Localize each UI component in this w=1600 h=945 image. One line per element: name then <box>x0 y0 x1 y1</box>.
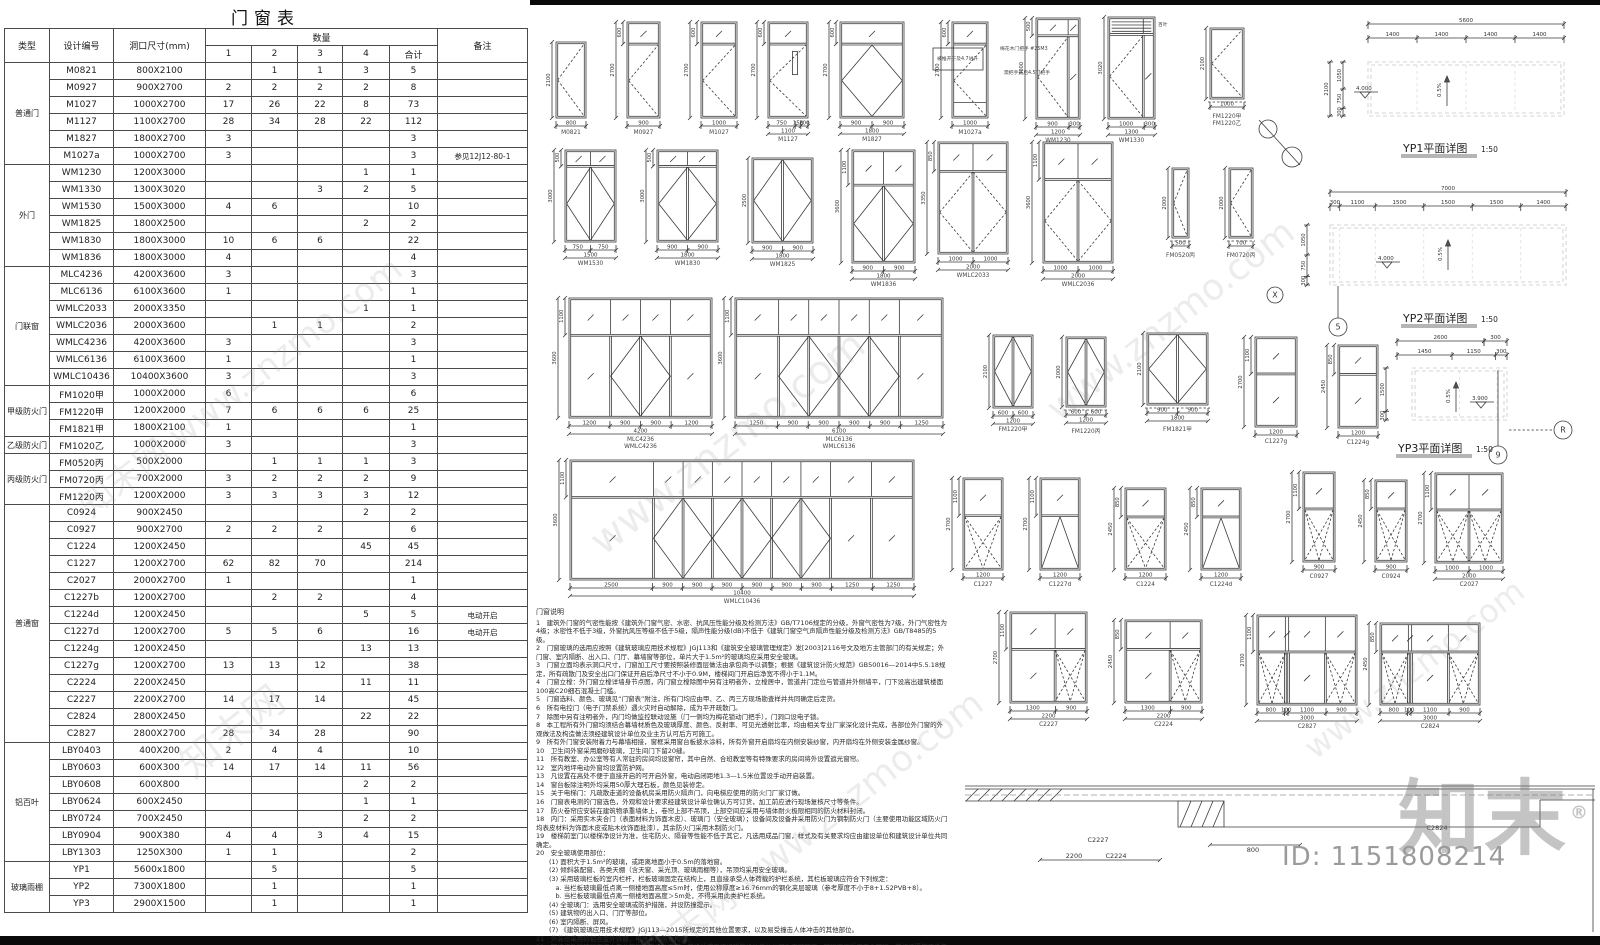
svg-text:3.900: 3.900 <box>1472 396 1488 402</box>
svg-text:600: 600 <box>1018 411 1029 417</box>
diagram-MLC4236 <box>556 296 714 436</box>
annotation: 百叶 <box>1158 21 1168 28</box>
svg-text:2450: 2450 <box>1184 522 1190 535</box>
svg-text:300: 300 <box>1496 349 1507 355</box>
svg-text:900: 900 <box>1181 706 1192 712</box>
svg-text:300: 300 <box>1330 200 1341 206</box>
svg-text:850: 850 <box>1328 354 1334 364</box>
svg-text:900: 900 <box>818 421 829 427</box>
svg-text:1100: 1100 <box>1000 624 1006 637</box>
svg-text:4.000: 4.000 <box>1378 256 1394 262</box>
svg-text:1200: 1200 <box>582 421 596 427</box>
section-label: C2227 <box>1087 836 1108 844</box>
svg-text:2450: 2450 <box>1363 657 1369 670</box>
svg-text:900: 900 <box>620 421 631 427</box>
svg-text:800: 800 <box>1389 708 1400 714</box>
plan-YP3平面详图 <box>1383 338 1509 422</box>
svg-text:2450: 2450 <box>1321 380 1327 393</box>
svg-text:100: 100 <box>1281 708 1292 714</box>
svg-text:0.5%: 0.5% <box>1446 389 1452 403</box>
diagram-FM0720丙 <box>1223 166 1255 249</box>
svg-text:3600: 3600 <box>552 351 558 364</box>
note-line: 11 所有教室、办公室等有人常驻的房间均设窗帘，其中自然、合班教室等有特殊要求的… <box>536 755 948 764</box>
svg-text:900: 900 <box>894 266 905 272</box>
diagram-WM1836 <box>839 148 917 281</box>
svg-text:FM1821甲: FM1821甲 <box>1163 426 1192 433</box>
note-line: 1 建筑外门窗的气密性能按《建筑外门窗气密、水密、抗风压性能分级及检测方法》GB… <box>536 619 948 645</box>
svg-text:2700: 2700 <box>1418 511 1424 524</box>
diagram-C2027 <box>1422 471 1505 581</box>
svg-text:1250: 1250 <box>886 583 900 589</box>
svg-text:1200: 1200 <box>976 573 990 579</box>
svg-text:750: 750 <box>1301 261 1307 271</box>
svg-text:1000: 1000 <box>984 257 998 263</box>
svg-text:3000: 3000 <box>1423 716 1437 722</box>
svg-text:2100: 2100 <box>546 73 552 86</box>
svg-text:800: 800 <box>1266 708 1277 714</box>
svg-text:FM0720丙: FM0720丙 <box>1227 252 1256 259</box>
svg-text:2000: 2000 <box>1162 196 1168 209</box>
svg-text:2700: 2700 <box>610 63 616 76</box>
svg-text:1150: 1150 <box>1467 349 1481 355</box>
svg-text:750: 750 <box>598 245 609 251</box>
svg-text:4200: 4200 <box>634 429 648 435</box>
svg-text:1000: 1000 <box>1479 566 1493 572</box>
svg-text:1300: 1300 <box>1141 706 1155 712</box>
plan-title: YP3平面详图 <box>1397 441 1462 455</box>
svg-text:1400: 1400 <box>1533 32 1547 38</box>
svg-text:1100: 1100 <box>1293 484 1299 497</box>
svg-text:1100: 1100 <box>1245 349 1251 362</box>
svg-text:900: 900 <box>662 583 673 589</box>
svg-text:1500: 1500 <box>584 253 598 259</box>
note-line: 8 本工程所有外门窗均须结合幕墙材质色及玻璃厚度、颜色、反射率、可见光透射比率，… <box>536 721 948 738</box>
svg-text:C2227: C2227 <box>1039 722 1058 728</box>
svg-text:2200: 2200 <box>1042 714 1056 720</box>
note-line: (4) 全玻璃门：选用安全玻璃或防护措施，并设防撞提示。 <box>536 901 948 910</box>
note-line: (3) 采用玻璃栏板的室内栏杆，栏板玻璃固定在结构上，且直接承受人体荷载的护栏系… <box>536 875 948 884</box>
svg-text:0.5%: 0.5% <box>1437 83 1443 97</box>
diagram-M1827 <box>827 20 906 136</box>
note-line: 18 内门：采用实木夹合门（表面材料为饰面木皮）、玻璃门（安全玻璃）；设备间及设… <box>536 815 948 832</box>
note-line: (5) 建筑物的出入口、门厅等部位。 <box>536 909 948 918</box>
svg-text:900: 900 <box>851 121 862 127</box>
note-line: (7) 《建筑玻璃应用技术规程》JGJ113—2015所规定的其他位置要求，以及… <box>536 926 948 935</box>
svg-text:MLC6136: MLC6136 <box>825 437 852 443</box>
note-line: (6) 室内隔断、屏风。 <box>536 918 948 927</box>
svg-text:WM1836: WM1836 <box>871 282 897 288</box>
svg-text:1400: 1400 <box>1386 32 1400 38</box>
note-line: b. 当栏板玻璃最低点离一侧楼地面高度＞5m处，不得采用此类护栏系统。 <box>536 892 948 901</box>
note-line: 9 所有外门窗安装附着力与幕墙相接，窗框采用窗台板披水涂料，所有外窗开启扇均在内… <box>536 738 948 747</box>
svg-text:1100: 1100 <box>1033 154 1039 167</box>
svg-text:1100: 1100 <box>560 472 566 485</box>
svg-text:300: 300 <box>1337 107 1343 117</box>
svg-text:1100: 1100 <box>559 310 565 323</box>
svg-text:600: 600 <box>691 28 697 38</box>
svg-text:WMLC4236: WMLC4236 <box>624 444 657 450</box>
svg-text:900: 900 <box>788 421 799 427</box>
svg-text:800: 800 <box>566 121 577 127</box>
svg-text:C2827: C2827 <box>1298 724 1317 730</box>
note-line: 2 门窗玻璃的选用应按照《建筑玻璃应用技术规程》JGJ113和《建筑安全玻璃管理… <box>536 644 948 661</box>
note-line: (2) 倾斜装配窗、各类天棚（含天窗、采光顶、玻璃雨棚等），吊顶均采用安全玻璃。 <box>536 866 948 875</box>
svg-text:WM1230: WM1230 <box>1045 138 1071 144</box>
svg-text:600: 600 <box>758 28 764 38</box>
svg-text:M0927: M0927 <box>634 130 654 136</box>
plan-title: YP1平面详图 <box>1402 141 1467 155</box>
svg-text:3000: 3000 <box>548 189 554 202</box>
svg-text:1500: 1500 <box>1380 383 1386 396</box>
svg-text:1250: 1250 <box>915 421 929 427</box>
svg-text:2100: 2100 <box>1200 57 1206 70</box>
notes-block: 门窗说明 1 建筑外门窗的气密性能按《建筑外门窗气密、水密、抗风压性能分级及检测… <box>536 608 948 945</box>
svg-text:3020: 3020 <box>1098 61 1104 74</box>
svg-text:1200: 1200 <box>1351 431 1365 437</box>
svg-text:900: 900 <box>692 583 703 589</box>
svg-text:1500: 1500 <box>1393 200 1407 206</box>
note-line: 19 楼梯前室门以楼梯净设计为准，住宅防火、隔音等性能不低于其它，凡选用成品门窗… <box>536 832 948 849</box>
svg-text:2700: 2700 <box>935 63 941 76</box>
svg-text:1100: 1100 <box>842 161 848 174</box>
svg-text:900: 900 <box>811 583 822 589</box>
svg-text:900: 900 <box>698 245 709 251</box>
svg-text:2700: 2700 <box>1238 375 1244 388</box>
svg-text:2100: 2100 <box>1137 362 1143 375</box>
svg-text:900: 900 <box>793 246 804 252</box>
svg-text:600: 600 <box>942 28 948 38</box>
svg-text:1100: 1100 <box>1300 708 1314 714</box>
svg-text:1050: 1050 <box>1337 69 1343 82</box>
svg-text:C0927: C0927 <box>1310 574 1329 580</box>
svg-text:3000: 3000 <box>1300 716 1314 722</box>
svg-text:1200: 1200 <box>1139 573 1153 579</box>
svg-text:600: 600 <box>1071 410 1082 416</box>
svg-text:500: 500 <box>647 153 653 163</box>
svg-text:C1224d: C1224d <box>1210 582 1233 588</box>
svg-text:500: 500 <box>555 153 561 163</box>
svg-text:900: 900 <box>1459 708 1470 714</box>
svg-text:WM1330: WM1330 <box>1119 138 1145 144</box>
svg-text:200: 200 <box>799 121 810 127</box>
svg-text:2100: 2100 <box>1324 82 1330 95</box>
note-line: 5 门窗选料、颜色、玻璃见“门窗表”附注，所有门均应由甲、乙、丙三方现场勘查样并… <box>536 695 948 704</box>
diagram-FM1220甲 <box>1204 26 1246 110</box>
svg-text:1500: 1500 <box>1441 200 1455 206</box>
svg-text:1250: 1250 <box>749 421 763 427</box>
svg-text:2450: 2450 <box>1108 655 1114 668</box>
plan-YP2平面详图 <box>1304 189 1568 287</box>
svg-text:1500: 1500 <box>1489 200 1503 206</box>
svg-text:2700: 2700 <box>993 651 999 664</box>
svg-text:700: 700 <box>1236 241 1247 247</box>
diagram-WMLC2033 <box>925 140 1010 272</box>
svg-text:FM1220乙: FM1220乙 <box>1213 120 1242 127</box>
svg-text:1100: 1100 <box>953 490 959 503</box>
note-line: 7 除图中另有注明者外，内门均做监控联动设施（门一侧均为梅花锁动门把手），门洞口… <box>536 713 948 722</box>
svg-text:900: 900 <box>863 266 874 272</box>
diagram-C2227 <box>997 610 1089 721</box>
svg-text:900: 900 <box>722 583 733 589</box>
svg-text:FM1220丙: FM1220丙 <box>1072 428 1101 435</box>
sheet-id-label: ID: 1151808214 <box>1282 842 1506 872</box>
note-line: 3 门窗立面均表示洞口尺寸，门窗加工尺寸要按照装修面层做法由承包商予以调整；根据… <box>536 661 948 678</box>
svg-text:3600: 3600 <box>553 513 559 526</box>
svg-text:1800: 1800 <box>1171 416 1185 422</box>
svg-text:2000: 2000 <box>1071 274 1085 280</box>
note-line: 4 门窗立樘：外门窗立樘详墙身节点图，内门窗立樘除图中另有注明者外，立樘居中，管… <box>536 678 948 695</box>
section-label: 800 <box>1247 846 1259 854</box>
svg-text:1100: 1100 <box>1423 708 1437 714</box>
svg-text:WM1825: WM1825 <box>770 262 796 268</box>
svg-text:7000: 7000 <box>1441 186 1455 192</box>
svg-text:2450: 2450 <box>1358 514 1364 527</box>
diagram-FM1821甲 <box>1141 331 1210 423</box>
svg-text:FM0520丙: FM0520丙 <box>1166 252 1195 259</box>
svg-text:2700: 2700 <box>823 63 829 76</box>
svg-text:2700: 2700 <box>1240 653 1246 666</box>
svg-text:C1227d: C1227d <box>1049 582 1072 588</box>
svg-text:900: 900 <box>638 121 649 127</box>
notes-title: 门窗说明 <box>536 608 948 617</box>
svg-text:2000: 2000 <box>1219 196 1225 209</box>
svg-text:2600: 2600 <box>1434 335 1448 341</box>
svg-text:1400: 1400 <box>1536 200 1550 206</box>
note-line: a. 当栏板玻璃最低点离一侧楼地面高度≤5m时，使用公称厚度≥16.76mm的钢… <box>536 884 948 893</box>
svg-text:1:50: 1:50 <box>1476 445 1493 454</box>
svg-text:M1127: M1127 <box>778 137 798 143</box>
svg-text:3600: 3600 <box>1026 196 1032 209</box>
svg-text:FM1220甲: FM1220甲 <box>999 426 1028 433</box>
svg-text:1100: 1100 <box>725 310 731 323</box>
logo-reg-mark: ® <box>1570 803 1592 824</box>
svg-text:1000: 1000 <box>1089 266 1103 272</box>
svg-text:2000: 2000 <box>1056 365 1062 378</box>
svg-text:M0821: M0821 <box>561 130 581 136</box>
svg-text:850: 850 <box>1370 632 1376 642</box>
plan-title: YP2平面详图 <box>1402 311 1467 325</box>
svg-text:WM1830: WM1830 <box>675 261 701 267</box>
svg-text:X: X <box>1272 291 1278 300</box>
diagram-WM1825 <box>746 156 815 261</box>
svg-text:1000: 1000 <box>1119 122 1133 128</box>
diagram-FM0520丙 <box>1166 166 1191 249</box>
note-line: 6 所有电控门（电子门禁系统）遇火灾时自动解除，成为平开疏散门。 <box>536 704 948 713</box>
svg-text:2700: 2700 <box>751 63 757 76</box>
annotation: 梅花木门把手 #25M3 <box>1000 45 1048 52</box>
svg-text:850: 850 <box>928 151 934 161</box>
svg-text:M1827: M1827 <box>862 137 882 143</box>
svg-text:2700: 2700 <box>1023 517 1029 530</box>
notes-lines: 1 建筑外门窗的气密性能按《建筑外门窗气密、水密、抗风压性能分级及检测方法》GB… <box>536 619 948 945</box>
svg-text:850: 850 <box>1115 497 1121 507</box>
svg-text:2000: 2000 <box>966 265 980 271</box>
svg-text:2700: 2700 <box>1286 510 1292 523</box>
svg-text:C1227: C1227 <box>974 582 993 588</box>
diagram-WM1330 <box>1102 15 1157 137</box>
svg-text:1200: 1200 <box>1006 419 1020 425</box>
svg-text:600: 600 <box>830 28 836 38</box>
svg-text:0.5%: 0.5% <box>1438 247 1444 261</box>
svg-text:M1027: M1027 <box>709 130 729 136</box>
svg-text:100: 100 <box>1404 708 1415 714</box>
svg-text:500: 500 <box>1175 241 1186 247</box>
svg-text:3000: 3000 <box>640 189 646 202</box>
svg-text:1000: 1000 <box>1445 566 1459 572</box>
svg-text:2500: 2500 <box>742 194 748 207</box>
note-line: 20 安全玻璃使用部位： <box>536 849 948 858</box>
svg-text:C0924: C0924 <box>1382 574 1401 580</box>
svg-text:900: 900 <box>1157 408 1168 414</box>
svg-text:C1224: C1224 <box>1136 582 1155 588</box>
svg-text:1000: 1000 <box>963 121 977 127</box>
svg-text:1:50: 1:50 <box>1481 315 1498 324</box>
svg-text:C2824: C2824 <box>1421 724 1440 730</box>
svg-text:1000: 1000 <box>1054 266 1068 272</box>
svg-text:MLC4236: MLC4236 <box>627 437 654 443</box>
svg-text:900: 900 <box>762 246 773 252</box>
svg-text:1200: 1200 <box>1214 573 1228 579</box>
svg-text:1800: 1800 <box>681 253 695 259</box>
svg-text:C1227g: C1227g <box>1265 439 1288 445</box>
annotation: 被推开于及4.7进升 <box>937 55 978 62</box>
diagram-C2827 <box>1244 613 1359 723</box>
note-line: 16 门窗表电测的门窗选色，外观和设计要求经建筑设计单位确认方可订货，加工前应进… <box>536 798 948 807</box>
svg-text:500: 500 <box>1026 21 1032 31</box>
svg-text:600: 600 <box>998 411 1009 417</box>
diagram-M0821 <box>550 40 588 129</box>
svg-text:1100: 1100 <box>1247 627 1253 640</box>
svg-text:1200: 1200 <box>685 421 699 427</box>
svg-text:1100: 1100 <box>1425 485 1431 498</box>
svg-text:WMLC2036: WMLC2036 <box>1062 282 1095 288</box>
diagram-MLC6136 <box>722 296 945 436</box>
svg-text:900: 900 <box>1314 565 1325 571</box>
svg-text:1800: 1800 <box>877 274 891 280</box>
svg-text:850: 850 <box>1191 497 1197 507</box>
svg-text:1200: 1200 <box>1269 430 1283 436</box>
svg-text:1000: 1000 <box>1220 102 1234 108</box>
svg-text:M1027a: M1027a <box>958 130 982 136</box>
diagram-WM1530 <box>552 148 618 260</box>
svg-text:5600: 5600 <box>1459 18 1473 24</box>
svg-text:WMLC2033: WMLC2033 <box>957 273 990 279</box>
svg-text:3600: 3600 <box>835 200 841 213</box>
svg-text:1300: 1300 <box>1026 706 1040 712</box>
svg-text:750: 750 <box>573 245 584 251</box>
svg-text:1:50: 1:50 <box>1481 145 1498 154</box>
svg-text:4.000: 4.000 <box>1356 86 1372 92</box>
svg-text:1400: 1400 <box>1484 32 1498 38</box>
svg-text:900: 900 <box>1188 408 1199 414</box>
svg-text:900: 900 <box>1336 708 1347 714</box>
diagram-WMLC2036 <box>1030 140 1115 281</box>
svg-text:900: 900 <box>883 121 894 127</box>
svg-text:10400: 10400 <box>733 591 751 597</box>
svg-text:300: 300 <box>1490 335 1501 341</box>
svg-text:1000: 1000 <box>712 121 726 127</box>
svg-text:1100: 1100 <box>1350 200 1364 206</box>
annotation: 需把手开启4.5门把手 <box>1004 69 1050 76</box>
svg-text:2100: 2100 <box>983 365 989 378</box>
svg-text:3600: 3600 <box>718 351 724 364</box>
svg-text:WMLC6136: WMLC6136 <box>823 444 856 450</box>
svg-text:1200: 1200 <box>1053 573 1067 579</box>
svg-text:3350: 3350 <box>921 191 927 204</box>
svg-text:900: 900 <box>752 583 763 589</box>
svg-text:WMLC10436: WMLC10436 <box>724 599 761 605</box>
svg-text:900: 900 <box>880 421 891 427</box>
note-line: 13 凡设置在高处不便于直接开启的可开启外窗，电动启闭距地1.3—1.5米位置设… <box>536 772 948 781</box>
note-line: 15 关于电梯门：凡疏散走道的设备机房采用防火隔声门，向电梯应使用的防火门厂家订… <box>536 789 948 798</box>
svg-text:850: 850 <box>1115 629 1121 639</box>
svg-text:300: 300 <box>1380 411 1386 421</box>
svg-text:2500: 2500 <box>604 583 618 589</box>
svg-text:750: 750 <box>1337 94 1343 104</box>
svg-text:1000: 1000 <box>949 257 963 263</box>
svg-text:2200: 2200 <box>1157 714 1171 720</box>
svg-text:C2027: C2027 <box>1460 582 1479 588</box>
svg-text:900: 900 <box>1047 122 1058 128</box>
svg-text:1800: 1800 <box>776 254 790 260</box>
svg-text:600: 600 <box>1091 410 1102 416</box>
section-label: 2200 <box>1066 852 1083 860</box>
svg-text:600: 600 <box>617 28 623 38</box>
svg-text:850: 850 <box>1365 489 1371 499</box>
svg-text:1250: 1250 <box>845 583 859 589</box>
svg-text:900: 900 <box>849 421 860 427</box>
svg-text:2450: 2450 <box>1108 522 1114 535</box>
svg-text:5: 5 <box>1335 323 1340 332</box>
svg-text:6100: 6100 <box>832 429 846 435</box>
svg-text:2700: 2700 <box>684 63 690 76</box>
svg-text:300: 300 <box>1144 122 1155 128</box>
svg-text:1800: 1800 <box>865 129 879 135</box>
svg-text:2700: 2700 <box>946 517 952 530</box>
svg-text:300: 300 <box>1301 276 1307 286</box>
svg-text:900: 900 <box>1066 706 1077 712</box>
svg-text:1400: 1400 <box>1435 32 1449 38</box>
svg-text:9: 9 <box>1495 451 1500 460</box>
svg-text:300: 300 <box>1069 122 1080 128</box>
diagram-WMLC10436 <box>557 458 916 598</box>
svg-text:C1224g: C1224g <box>1347 440 1370 446</box>
svg-text:1450: 1450 <box>1418 349 1432 355</box>
svg-text:1200: 1200 <box>1051 130 1065 136</box>
svg-text:1300: 1300 <box>1125 130 1139 136</box>
svg-text:900: 900 <box>781 583 792 589</box>
svg-text:750: 750 <box>776 121 787 127</box>
section-label: C2224 <box>1105 852 1126 860</box>
svg-text:1100: 1100 <box>1030 490 1036 503</box>
svg-text:FM1220甲: FM1220甲 <box>1213 113 1242 120</box>
svg-text:1200: 1200 <box>1079 418 1093 424</box>
cad-sheet: 门窗表 类型设计编号洞口尺寸(mm)数量备注1234合计普通门M0821800X… <box>0 0 1600 945</box>
diagram-WM1230 <box>1023 16 1082 137</box>
svg-text:C2224: C2224 <box>1154 722 1173 728</box>
svg-text:1100: 1100 <box>781 129 795 135</box>
diagram-WM1830 <box>644 148 720 260</box>
svg-text:1050: 1050 <box>1301 233 1307 246</box>
note-line: 17 防火卷帘应安装在建筑物承重墙体上，卷帘上部不吊顶，上部空间应采用与墙体耐火… <box>536 807 948 816</box>
svg-text:900: 900 <box>667 245 678 251</box>
svg-text:R: R <box>1560 426 1566 435</box>
note-line: 10 卫生间外窗采用磨砂玻璃，卫生间门下留20缝。 <box>536 747 948 756</box>
svg-text:900: 900 <box>651 421 662 427</box>
svg-text:WM1530: WM1530 <box>578 261 604 267</box>
svg-text:2000: 2000 <box>1462 574 1476 580</box>
svg-text:900: 900 <box>1386 565 1397 571</box>
